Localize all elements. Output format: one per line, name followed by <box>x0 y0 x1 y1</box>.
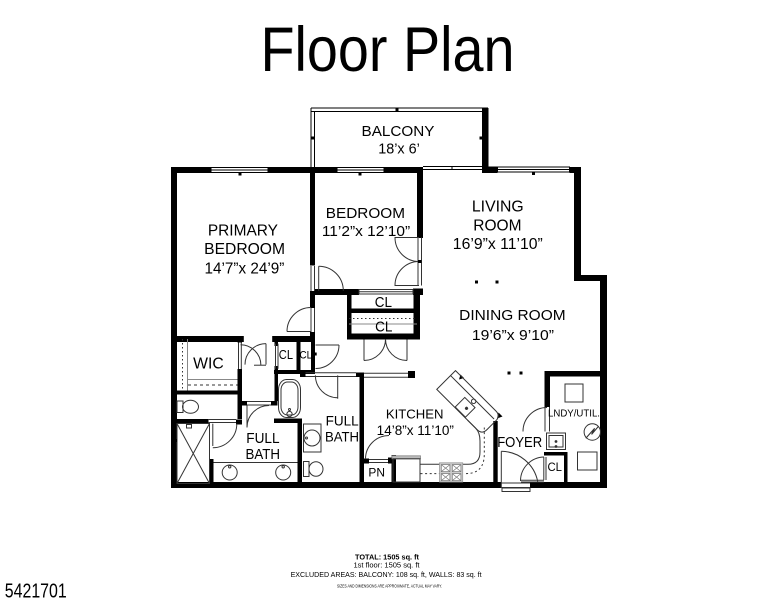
svg-text:CL: CL <box>547 461 562 474</box>
svg-text:14’8”x 11’10”: 14’8”x 11’10” <box>377 423 454 438</box>
svg-text:DINING ROOM: DINING ROOM <box>459 307 565 324</box>
svg-text:PN: PN <box>368 466 385 480</box>
svg-text:KITCHEN: KITCHEN <box>386 407 444 421</box>
svg-text:SIZES AND DIMENSIONS ARE APPRO: SIZES AND DIMENSIONS ARE APPROXIMATE, AC… <box>337 583 442 588</box>
svg-text:Floor Plan: Floor Plan <box>261 15 515 85</box>
svg-text:16’9”x 11’10”: 16’9”x 11’10” <box>453 236 543 253</box>
svg-text:LNDY/UTIL.: LNDY/UTIL. <box>548 409 600 420</box>
svg-text:FOYER: FOYER <box>497 435 542 451</box>
svg-text:WIC: WIC <box>193 355 224 372</box>
svg-text:11’2”x 12’10”: 11’2”x 12’10” <box>322 223 410 240</box>
svg-text:BEDROOM: BEDROOM <box>204 241 285 258</box>
svg-text:ROOM: ROOM <box>473 217 521 234</box>
svg-text:EXCLUDED AREAS: BALCONY: 108 s: EXCLUDED AREAS: BALCONY: 108 sq. ft, WAL… <box>291 570 482 579</box>
svg-text:CL: CL <box>299 350 312 362</box>
svg-text:FULL: FULL <box>326 412 359 428</box>
svg-text:19’6”x 9’10”: 19’6”x 9’10” <box>472 327 554 344</box>
svg-text:1st floor: 1505 sq. ft: 1st floor: 1505 sq. ft <box>354 560 420 569</box>
svg-text:CL: CL <box>375 295 392 311</box>
svg-text:5421701: 5421701 <box>5 580 67 600</box>
svg-text:PRIMARY: PRIMARY <box>208 223 278 240</box>
svg-text:18’x 6’: 18’x 6’ <box>378 140 420 157</box>
svg-text:BALCONY: BALCONY <box>362 123 435 140</box>
svg-text:BEDROOM: BEDROOM <box>326 205 405 222</box>
svg-text:BATH: BATH <box>325 429 359 445</box>
svg-text:CL: CL <box>279 347 293 362</box>
svg-text:FULL: FULL <box>246 431 279 447</box>
svg-text:BATH: BATH <box>245 447 280 463</box>
svg-text:LIVING: LIVING <box>472 198 524 215</box>
svg-text:CL: CL <box>375 319 392 335</box>
svg-text:14’7”x 24’9”: 14’7”x 24’9” <box>205 260 285 277</box>
